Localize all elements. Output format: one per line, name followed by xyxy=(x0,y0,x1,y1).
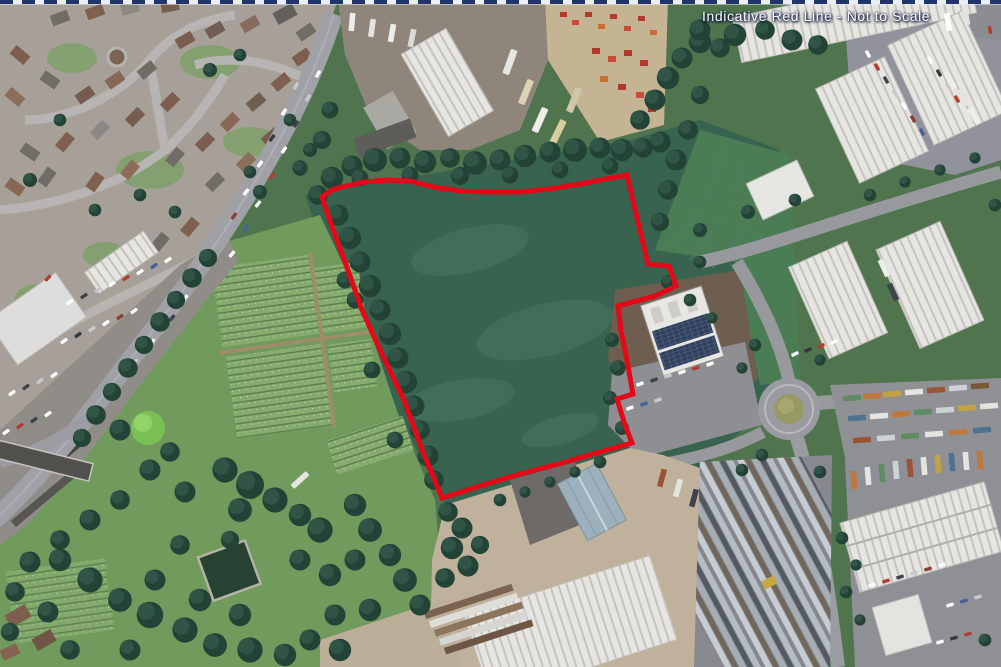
aerial-photo-canvas xyxy=(0,0,1001,667)
atmospheric-haze xyxy=(0,0,1001,667)
satellite-map: Indicative Red Line - Not to Scale xyxy=(0,0,1001,667)
red-line-disclaimer-label: Indicative Red Line - Not to Scale xyxy=(702,8,930,24)
